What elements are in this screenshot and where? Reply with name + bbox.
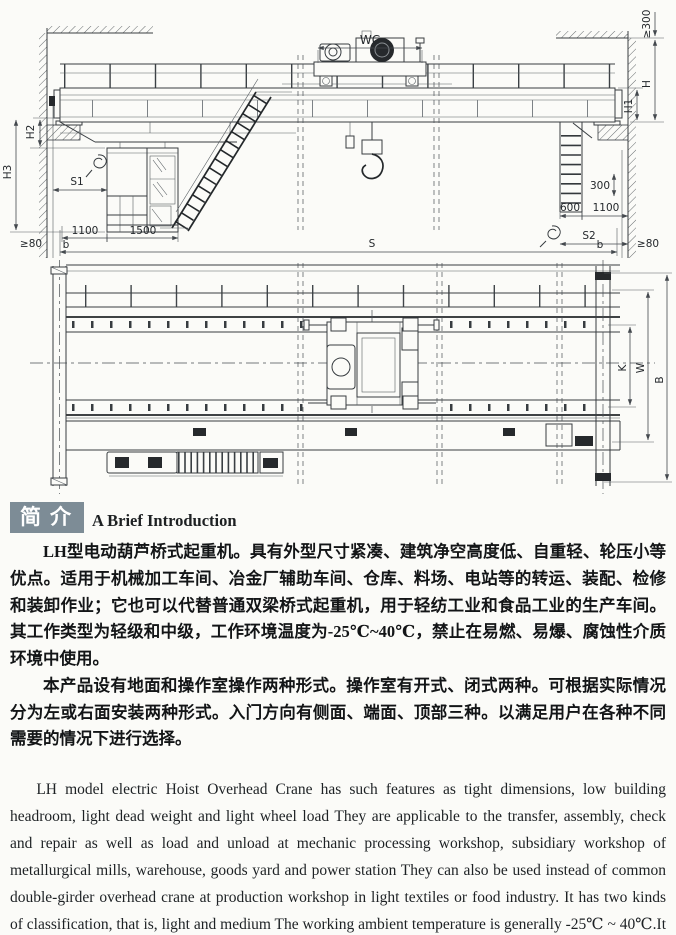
dim-label-h3: H3 [2, 165, 14, 180]
building-wall-right [556, 31, 636, 258]
plan-view-drawing: K W B [0, 258, 676, 500]
dim-label-600: 600 [560, 202, 580, 214]
dim-label-w: W [635, 362, 647, 373]
hook-symbol-right [540, 226, 560, 247]
plan-bridge-platform [66, 265, 620, 307]
hook-symbol-left [86, 155, 106, 177]
dim-label-b: B [654, 376, 666, 383]
dim-label-h: H [641, 80, 653, 88]
technical-drawing: WC ≥300 H H1 H2 [0, 0, 676, 500]
dimension-600-1100: 600 1100 [560, 202, 628, 220]
dim-label-1100-left: 1100 [72, 225, 99, 237]
dim-label-300: 300 [590, 180, 610, 192]
dim-label-k: K [617, 363, 629, 371]
dim-label-s: S [369, 238, 376, 250]
dim-label-ge80-left: ≥80 [20, 238, 42, 250]
chinese-paragraph-2: 本产品设有地面和操作室操作两种形式。操作室有开式、闭式两种。可根据实际情况分为左… [10, 673, 666, 753]
plan-dimension-b: B [604, 273, 672, 482]
plan-equipment-box [546, 424, 593, 446]
section-header: 简介 A Brief Introduction [10, 502, 666, 533]
dimension-s2: S2 [560, 230, 628, 244]
ladder [560, 122, 582, 212]
plan-dimension-k: K [608, 325, 636, 407]
dimension-300: 300 [590, 174, 614, 196]
dim-label-b-left: b [63, 239, 70, 251]
brochure-page: WC ≥300 H H1 H2 [0, 0, 676, 935]
dim-label-ge80-right: ≥80 [637, 238, 659, 250]
dim-label-wc: WC [360, 33, 380, 47]
plan-cabin [107, 452, 283, 476]
plan-end-carriage-left [51, 260, 67, 494]
english-paragraph-1: LH model electric Hoist Overhead Crane h… [10, 777, 666, 935]
plan-trolley [304, 310, 439, 413]
operator-cabin [107, 142, 178, 232]
dim-label-h2: H2 [25, 125, 37, 140]
elevation-view-drawing: WC ≥300 H H1 H2 [0, 0, 676, 258]
section-badge: 简介 [10, 502, 84, 533]
introduction-section: 简介 A Brief Introduction LH型电动葫芦桥式起重机。具有外… [0, 500, 676, 935]
dim-label-1500: 1500 [130, 225, 157, 237]
dimension-s1: S1 [53, 176, 107, 190]
dim-label-1100-right: 1100 [593, 202, 620, 214]
plan-walkway-apron [66, 418, 620, 450]
chinese-paragraph-1: LH型电动葫芦桥式起重机。具有外型尺寸紧凑、建筑净空高度低、自重轻、轮压小等优点… [10, 539, 666, 673]
dim-label-s1: S1 [70, 176, 83, 188]
dim-label-ge300: ≥300 [641, 10, 653, 39]
dimension-ge300: ≥300 [628, 10, 664, 39]
section-title: A Brief Introduction [92, 511, 237, 533]
plan-end-carriage-right [595, 260, 611, 494]
dim-label-b-right: b [597, 239, 604, 251]
dim-label-s2: S2 [582, 230, 595, 242]
dim-label-h1: H1 [623, 99, 635, 114]
hook-block [346, 122, 383, 178]
